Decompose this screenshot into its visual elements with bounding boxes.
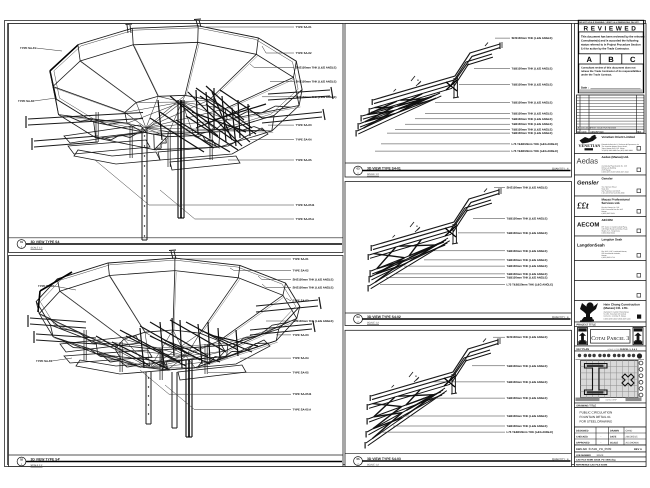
svg-text:DATE: DATE xyxy=(582,131,588,134)
svg-text:3D VIEW TYPE S4-02: 3D VIEW TYPE S4-02 xyxy=(367,315,401,319)
svg-text:B: B xyxy=(608,55,614,64)
svg-text:T&B150mm THK (L&G ANGLE): T&B150mm THK (L&G ANGLE) xyxy=(507,424,548,428)
svg-text:05: 05 xyxy=(356,457,360,461)
svg-text:TYPE SA-01: TYPE SA-01 xyxy=(293,257,309,261)
svg-text:T&B150mm THK (L&G ANGLE): T&B150mm THK (L&G ANGLE) xyxy=(507,249,548,253)
svg-text:T&B150mm THK (L&G ANGLE): T&B150mm THK (L&G ANGLE) xyxy=(512,67,553,71)
svg-text:status referred to in Pro: status referred to in Project Procedure … xyxy=(581,43,641,46)
svg-text:L75 T&B150mm THK (L&G ANGLE): L75 T&B150mm THK (L&G ANGLE) xyxy=(507,283,554,287)
svg-text:A: A xyxy=(416,225,418,228)
svg-text:3151B_PD_0509: 3151B_PD_0509 xyxy=(589,447,612,451)
svg-text:t (853) 2833 1710: t (853) 2833 1710 xyxy=(602,256,615,259)
svg-text:A: A xyxy=(417,79,419,82)
svg-text:SHS150mm THK (L&G ANGLE): SHS150mm THK (L&G ANGLE) xyxy=(296,79,337,83)
svg-text:t (853) 2837 5621: t (853) 2837 5621 xyxy=(602,212,615,215)
svg-text:5.4 for action by the Tra: 5.4 for action by the Trade Contractor. xyxy=(581,47,630,50)
svg-text:DWG NO: DWG NO xyxy=(576,448,587,451)
svg-text:PROJECT TITLE: PROJECT TITLE xyxy=(577,323,597,326)
svg-text:T&B150mm THK (L&G ANGLE): T&B150mm THK (L&G ANGLE) xyxy=(507,380,548,384)
svg-text:SCALE 1:2: SCALE 1:2 xyxy=(367,464,379,467)
svg-text:JOB NUMBER: JOB NUMBER xyxy=(576,454,591,457)
svg-text:3152E: 3152E xyxy=(597,454,604,457)
svg-text:(Macau) CO. LTD.: (Macau) CO. LTD. xyxy=(604,306,629,310)
svg-text:SCALE 1:2: SCALE 1:2 xyxy=(31,464,43,467)
svg-text:T&B150mm THK (L&G ANGLE): T&B150mm THK (L&G ANGLE) xyxy=(512,111,553,115)
svg-text:SHS150mm THK (L&G ANGLE): SHS150mm THK (L&G ANGLE) xyxy=(296,65,337,69)
svg-text:Comercio, 14 Andar E, Macau: Comercio, 14 Andar E, Macau xyxy=(604,315,627,318)
svg-text:TYPE SA-05: TYPE SA-05 xyxy=(296,158,312,162)
svg-text:Venetian Orient Limited: Venetian Orient Limited xyxy=(602,135,636,139)
svg-text:REFERENCE CAD FILE NAME: REFERENCE CAD FILE NAME xyxy=(576,463,608,466)
svg-text:03: 03 xyxy=(356,167,360,171)
svg-text:T&B150mm THK (L&G ANGLE): T&B150mm THK (L&G ANGLE) xyxy=(507,216,548,220)
svg-text:3D VIEW TYPE S4-03: 3D VIEW TYPE S4-03 xyxy=(367,457,401,461)
svg-text:TYPE SA-05 A: TYPE SA-05 A xyxy=(293,408,312,412)
svg-text:01: 01 xyxy=(20,240,24,244)
svg-text:DESIGNED: DESIGNED xyxy=(576,429,589,432)
svg-text:Gensler: Gensler xyxy=(602,177,614,181)
svg-text:SCALE 1:2: SCALE 1:2 xyxy=(31,247,43,250)
svg-text:DRAWN: DRAWN xyxy=(610,429,619,432)
svg-text:TYPE SA-04: TYPE SA-04 xyxy=(296,138,312,142)
svg-text:TYPE SA-04: TYPE SA-04 xyxy=(293,356,309,360)
svg-text:T&B150mm THK (L&G ANGLE): T&B150mm THK (L&G ANGLE) xyxy=(512,122,553,126)
svg-text:CHECKED: CHECKED xyxy=(576,435,588,438)
svg-text:Consultants(s) and is accor: Consultants(s) and is accorded the follo… xyxy=(581,40,639,43)
svg-text:TYPE SA-02: TYPE SA-02 xyxy=(296,51,312,55)
svg-text:TYPE SA-03: TYPE SA-03 xyxy=(296,123,312,127)
svg-text:PARCEL 1, 2 & 3: PARCEL 1, 2 & 3 xyxy=(620,348,638,351)
svg-text:VENETIAN: VENETIAN xyxy=(579,143,601,148)
svg-text:TYPE SA-02: TYPE SA-02 xyxy=(18,99,34,103)
svg-text:T&B150mm THK (L&G ANGLE): T&B150mm THK (L&G ANGLE) xyxy=(507,396,548,400)
svg-text:££t: ££t xyxy=(576,201,589,211)
svg-text:QUANTITY : 4: QUANTITY : 4 xyxy=(552,458,569,461)
svg-text:t (852) 3922 9000: t (852) 3922 9000 xyxy=(602,232,615,235)
svg-text:Aedas: Aedas xyxy=(577,157,599,166)
svg-text:Gensler: Gensler xyxy=(577,180,599,187)
svg-text:TYPE SA-03: TYPE SA-03 xyxy=(293,333,309,337)
svg-text:relieve the Trade Contracto: relieve the Trade Contractor of its resp… xyxy=(581,70,642,73)
svg-text:C: C xyxy=(630,55,636,64)
svg-text:QUANTITY : 4: QUANTITY : 4 xyxy=(552,316,569,319)
svg-text:T&B150mm THK (L&G ANGLE): T&B150mm THK (L&G ANGLE) xyxy=(507,231,548,235)
svg-text:2015/05/15: 2015/05/15 xyxy=(626,435,639,438)
svg-text:t (853) 2871 5193 f (853) 287: t (853) 2871 5193 f (853) 2871 5108 xyxy=(602,171,629,174)
svg-text:TYPE SA-05: TYPE SA-05 xyxy=(293,371,309,375)
svg-text:TYPE SA-01: TYPE SA-01 xyxy=(296,25,312,29)
svg-text:DRAWING TITLE: DRAWING TITLE xyxy=(577,405,597,408)
svg-text:Tel (853) 2882 8888 Fax (853): Tel (853) 2882 8888 Fax (853) 2882 8889 xyxy=(602,149,633,152)
svg-text:SHS150mm THK (L&G ANGLE): SHS150mm THK (L&G ANGLE) xyxy=(293,286,334,290)
svg-text:REVIEWED: REVIEWED xyxy=(584,25,639,32)
svg-text:T&B150mm THK (L&G ANGLE): T&B150mm THK (L&G ANGLE) xyxy=(512,131,553,135)
svg-text:T&B150mm THK (L&G ANGLE): T&B150mm THK (L&G ANGLE) xyxy=(507,258,548,262)
svg-text:CHAD: CHAD xyxy=(626,429,633,432)
svg-text:T&B150mm THK (L&G ANGLE): T&B150mm THK (L&G ANGLE) xyxy=(512,101,553,105)
svg-text:CAD FILE NAME 3151B_PD_0509.dw: CAD FILE NAME 3151B_PD_0509.dwg xyxy=(576,459,616,462)
svg-text:SHS150mm THK (L&G ANGLE): SHS150mm THK (L&G ANGLE) xyxy=(507,185,548,189)
svg-text:AECOM: AECOM xyxy=(602,218,614,222)
svg-text:SCALE: SCALE xyxy=(610,441,619,444)
svg-text:QUANTITY : 4: QUANTITY : 4 xyxy=(552,167,569,170)
svg-text:APPROVED: APPROVED xyxy=(576,441,590,444)
svg-text:DESCRIPTION: DESCRIPTION xyxy=(591,131,605,134)
svg-text:TYPE SA-02: TYPE SA-02 xyxy=(38,284,54,288)
svg-text:NO.: NO. xyxy=(577,131,581,134)
svg-text:T&B150mm THK (L&G ANGLE): T&B150mm THK (L&G ANGLE) xyxy=(512,83,553,87)
svg-text:TYPE SA-05 B: TYPE SA-05 B xyxy=(293,392,312,396)
svg-text:TYPE SA-05 B: TYPE SA-05 B xyxy=(296,203,315,207)
svg-text:SHS150mm THK (L&G ANGLE): SHS150mm THK (L&G ANGLE) xyxy=(296,95,337,99)
svg-text:TYPE SA-05 A: TYPE SA-05 A xyxy=(296,217,315,221)
svg-text:t (853) 2878 1866 f (853) 28: t (853) 2878 1866 f (853) 2878 1466 xyxy=(604,318,631,321)
svg-text:SHS150mm THK (L&G ANGLE): SHS150mm THK (L&G ANGLE) xyxy=(512,36,553,40)
svg-text:AECOM: AECOM xyxy=(577,222,599,229)
svg-text:04: 04 xyxy=(356,315,360,319)
svg-text:FIRST ISSUE FOR REVIEW: FIRST ISSUE FOR REVIEW xyxy=(591,126,617,129)
svg-text:LangdonSeah: LangdonSeah xyxy=(577,243,605,248)
svg-text:t 415.433.3700 f 415.836.4599: t 415.433.3700 f 415.836.4599 xyxy=(602,192,625,195)
svg-text:SHS150mm THK (L&G ANGLE): SHS150mm THK (L&G ANGLE) xyxy=(293,319,334,323)
svg-text:FOUNTAIN DETAIL 01: FOUNTAIN DETAIL 01 xyxy=(580,415,612,419)
svg-text:SCALE 1:7500: SCALE 1:7500 xyxy=(608,348,620,351)
svg-text:L75 T&B150mm THK (L&G ANGLE): L75 T&B150mm THK (L&G ANGLE) xyxy=(507,430,554,434)
svg-text:This document has been rev: This document has been reviewed by the r… xyxy=(581,36,645,39)
svg-text:TYPE SA-01: TYPE SA-01 xyxy=(20,46,36,50)
svg-text:Consultant review of this: Consultant review of this document does … xyxy=(581,66,636,69)
svg-text:TYPE SA-02: TYPE SA-02 xyxy=(293,298,309,302)
svg-text:02: 02 xyxy=(20,458,24,462)
svg-text:SHS150mm THK (L&G ANGLE): SHS150mm THK (L&G ANGLE) xyxy=(507,335,548,339)
svg-text:SCALE 1:2: SCALE 1:2 xyxy=(367,322,379,325)
svg-text:Date :: Date : xyxy=(581,85,589,89)
svg-text:3D VIEW TYPE S4': 3D VIEW TYPE S4' xyxy=(31,457,61,461)
svg-text:A: A xyxy=(415,375,417,378)
svg-text:SCALE 1:2: SCALE 1:2 xyxy=(367,173,379,176)
svg-text:T&B150mm THK (L&G ANGLE): T&B150mm THK (L&G ANGLE) xyxy=(507,264,548,268)
svg-text:T&B150mm THK (L&G ANGLE): T&B150mm THK (L&G ANGLE) xyxy=(507,276,548,280)
svg-text:Aedas (Macau) Ltd.: Aedas (Macau) Ltd. xyxy=(602,155,630,159)
svg-text:REV A: REV A xyxy=(634,448,642,451)
svg-text:TYPE SA-02: TYPE SA-02 xyxy=(293,269,309,273)
svg-text:A: A xyxy=(587,55,593,64)
svg-text:L75 T&B150mm THK (L&G ANGLE): L75 T&B150mm THK (L&G ANGLE) xyxy=(512,149,559,153)
svg-text:DATE: DATE xyxy=(610,435,617,438)
svg-text:Services Ltd.: Services Ltd. xyxy=(602,201,621,205)
svg-text:FOR STEEL DRAWING: FOR STEEL DRAWING xyxy=(580,420,613,424)
svg-text:AS SHOWN: AS SHOWN xyxy=(626,441,639,444)
svg-text:TYPE SA-03: TYPE SA-03 xyxy=(36,359,52,363)
svg-text:T&B150mm THK (L&G ANGLE): T&B150mm THK (L&G ANGLE) xyxy=(507,364,548,368)
svg-text:T&B150mm THK (L&G ANGLE): T&B150mm THK (L&G ANGLE) xyxy=(512,117,553,121)
svg-text:L75 T&B150mm THK (L&G ANGLE): L75 T&B150mm THK (L&G ANGLE) xyxy=(512,142,559,146)
svg-text:KEY PLAN: KEY PLAN xyxy=(577,348,590,351)
svg-text:SHS150mm THK (L&G ANGLE): SHS150mm THK (L&G ANGLE) xyxy=(293,278,334,282)
svg-text:T&B150mm THK (L&G ANGLE): T&B150mm THK (L&G ANGLE) xyxy=(507,414,548,418)
svg-text:COTAI STRIP: COTAI STRIP xyxy=(606,399,618,402)
svg-text:Langdon Seah: Langdon Seah xyxy=(602,238,623,242)
svg-text:under the Trade Contract.: under the Trade Contract. xyxy=(581,74,612,77)
svg-text:PUBLIC CIRCULATION: PUBLIC CIRCULATION xyxy=(580,411,613,415)
